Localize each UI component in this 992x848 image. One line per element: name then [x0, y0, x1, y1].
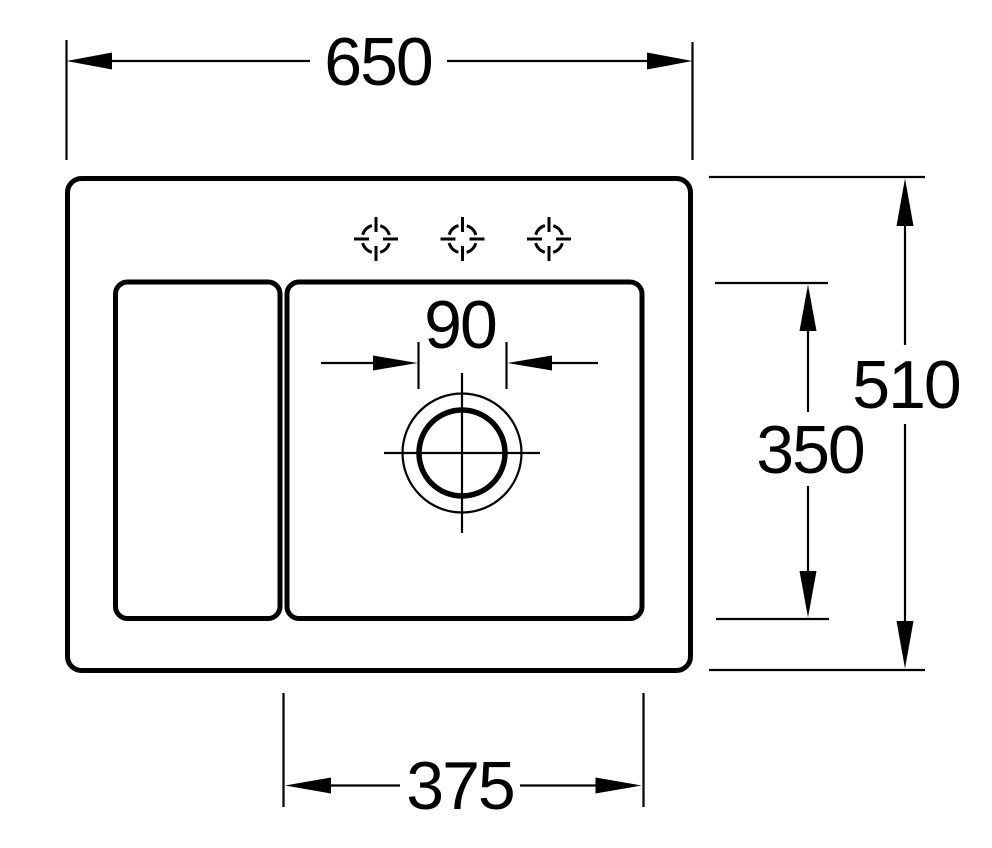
dim-label-650: 650 — [324, 24, 432, 100]
arrowhead-down — [897, 621, 914, 669]
drawing-canvas: 650 510 350 90 375 — [0, 0, 992, 848]
dim-label-90: 90 — [424, 287, 496, 363]
arrowhead-left — [285, 778, 331, 794]
dim-overall-width: 650 — [67, 24, 693, 160]
arrowhead-right — [596, 778, 642, 794]
dim-label-375: 375 — [406, 748, 513, 824]
drainboard-rect — [116, 282, 281, 619]
dim-label-350: 350 — [756, 412, 864, 488]
dim-basin-width: 375 — [284, 693, 644, 824]
arrowhead-up — [800, 285, 817, 332]
arrowhead-right — [647, 53, 693, 70]
drainboard — [116, 282, 281, 619]
arrowhead-left — [67, 53, 113, 70]
arrowhead-down — [800, 571, 817, 618]
sink-dimension-diagram: 650 510 350 90 375 — [0, 0, 992, 848]
dim-basin-height: 350 — [715, 283, 864, 619]
dim-label-510: 510 — [852, 347, 960, 423]
arrowhead-up — [897, 179, 914, 227]
